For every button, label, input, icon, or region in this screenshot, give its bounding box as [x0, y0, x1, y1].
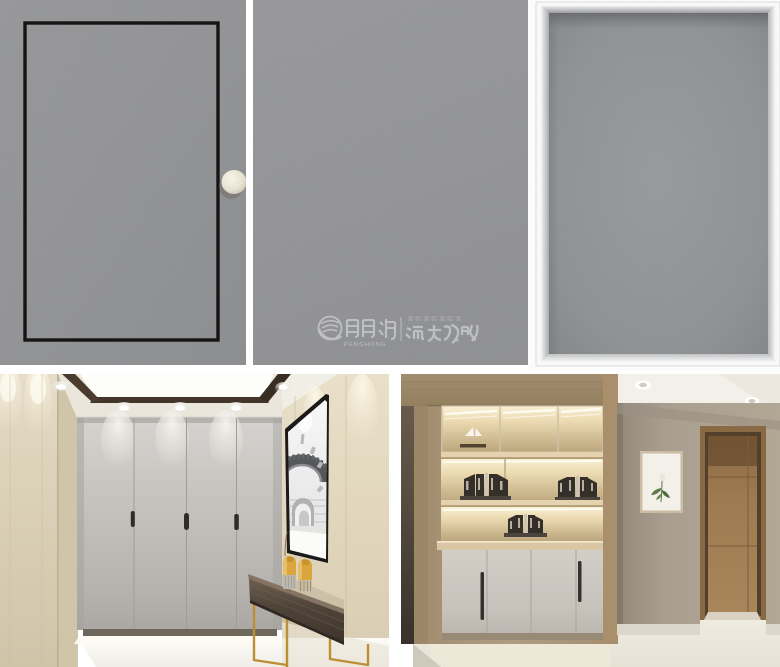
svg-text:PENGHONG: PENGHONG	[344, 342, 387, 348]
